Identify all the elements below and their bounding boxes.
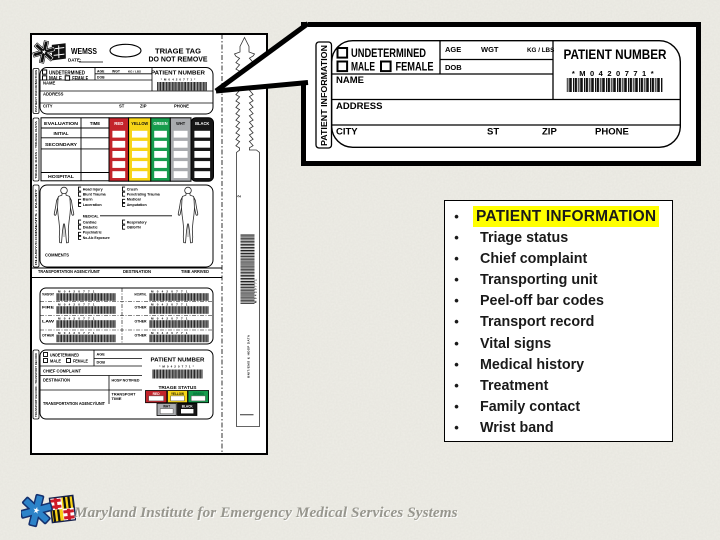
svg-text:BLACK: BLACK: [195, 121, 210, 126]
svg-text:M0420771: M0420771: [58, 302, 98, 306]
svg-text:CHIEF COMPLAINT: CHIEF COMPLAINT: [43, 369, 81, 374]
svg-text:HOSPITAL: HOSPITAL: [48, 174, 74, 179]
svg-text:*M0420771*: *M0420771*: [161, 78, 198, 82]
svg-text:TRANSPORTATION AGENCY/UNIT: TRANSPORTATION AGENCY/UNIT: [43, 401, 105, 406]
svg-text:UNDETERMINED: UNDETERMINED: [50, 352, 79, 357]
svg-text:M0420771: M0420771: [58, 316, 98, 320]
svg-text:ADDRESS: ADDRESS: [336, 101, 382, 112]
svg-text:CITY: CITY: [336, 127, 358, 138]
svg-text:PHONE: PHONE: [595, 127, 629, 138]
svg-text:OTHER: OTHER: [42, 334, 55, 338]
svg-text:INJURY/COMMENTS • INJURY: INJURY/COMMENTS • INJURY: [34, 189, 38, 265]
svg-text:YELLOW: YELLOW: [131, 121, 149, 126]
svg-text:INITIAL: INITIAL: [53, 131, 68, 136]
svg-text:DOB: DOB: [97, 76, 105, 80]
svg-text:TRANSPORT: TRANSPORT: [42, 292, 54, 296]
svg-text:PATIENT NUMBER: PATIENT NUMBER: [151, 358, 205, 364]
svg-text:TIME ARRIVED: TIME ARRIVED: [181, 269, 209, 274]
svg-text:PATIENT NUMBER: PATIENT NUMBER: [564, 47, 667, 62]
svg-text:KG / LBS: KG / LBS: [128, 70, 141, 74]
svg-text:AGE: AGE: [97, 353, 106, 357]
svg-text:AGE: AGE: [445, 45, 461, 54]
svg-text:TIME: TIME: [112, 396, 122, 401]
svg-text:MEDICAL: MEDICAL: [83, 213, 99, 218]
svg-text:HOSPITAL: HOSPITAL: [135, 292, 147, 296]
svg-text:WGT: WGT: [112, 70, 121, 74]
svg-text:FEMALE: FEMALE: [396, 62, 434, 74]
svg-text:WEMSS: WEMSS: [71, 47, 97, 56]
svg-text:OTHER: OTHER: [135, 319, 148, 323]
svg-text:SECONDARY: SECONDARY: [45, 142, 77, 147]
svg-text:LAW: LAW: [42, 319, 54, 323]
svg-text:MALE: MALE: [50, 358, 61, 363]
svg-text:No-Alc Exposure: No-Alc Exposure: [83, 235, 111, 240]
svg-text:UNIT/EMS & HOSP DATA: UNIT/EMS & HOSP DATA: [247, 334, 251, 378]
svg-text:WHT: WHT: [163, 405, 170, 409]
svg-text:M0420771: M0420771: [151, 289, 191, 293]
svg-text:WGT: WGT: [481, 45, 499, 54]
svg-text:Laceration: Laceration: [83, 202, 103, 207]
svg-text:ZIP: ZIP: [542, 127, 557, 138]
svg-text:DOB: DOB: [445, 63, 462, 72]
svg-text:OTHER: OTHER: [135, 305, 148, 309]
svg-text:NAME: NAME: [336, 75, 364, 86]
svg-text:AGE: AGE: [97, 70, 105, 74]
svg-text:ST: ST: [487, 127, 499, 138]
svg-text:TRIAGE DATA • TRIAGE DATA: TRIAGE DATA • TRIAGE DATA: [34, 120, 38, 179]
svg-text:TRANSPORT RECORD • TRANSPORT R: TRANSPORT RECORD • TRANSPORT RECORD: [34, 352, 38, 417]
svg-text:ST: ST: [119, 104, 125, 109]
svg-text:M0420771: M0420771: [151, 331, 191, 335]
svg-text:OB/GYN: OB/GYN: [127, 225, 141, 230]
svg-text:PHONE: PHONE: [174, 104, 189, 109]
svg-text:RED: RED: [153, 392, 161, 396]
svg-text:DO NOT REMOVE: DO NOT REMOVE: [149, 55, 208, 64]
svg-text:DESTINATION: DESTINATION: [123, 269, 151, 274]
svg-text:EVALUATION: EVALUATION: [44, 121, 78, 126]
svg-text:WHT: WHT: [176, 121, 185, 126]
svg-text:DOB: DOB: [97, 361, 106, 365]
svg-text:BLACK: BLACK: [182, 405, 194, 409]
svg-text:CITY: CITY: [43, 104, 53, 109]
svg-text:YELLOW: YELLOW: [171, 392, 184, 396]
svg-text:PATIENT INFORMATION: PATIENT INFORMATION: [319, 45, 329, 146]
svg-text:MALE: MALE: [351, 62, 375, 74]
svg-text:HOSP NOTIFIED: HOSP NOTIFIED: [112, 378, 140, 383]
svg-text:DESTINATION: DESTINATION: [43, 378, 70, 383]
svg-text:M0420771: M0420771: [254, 278, 258, 303]
svg-text:FIRE: FIRE: [42, 305, 54, 309]
svg-text:PATIENT INFORMATION: PATIENT INFORMATION: [34, 70, 38, 112]
svg-text:*M0420771*: *M0420771*: [572, 69, 658, 78]
svg-text:M0420771: M0420771: [58, 331, 98, 335]
svg-text:Amputation: Amputation: [127, 202, 148, 207]
svg-text:ADDRESS: ADDRESS: [43, 92, 64, 97]
svg-text:TIME: TIME: [90, 121, 100, 126]
svg-text:OTHER: OTHER: [135, 334, 148, 338]
svg-text:RED: RED: [114, 121, 123, 126]
svg-text:TRANSPORTATION AGENCY/UNIT: TRANSPORTATION AGENCY/UNIT: [38, 269, 100, 274]
svg-text:UNDETERMINED: UNDETERMINED: [351, 48, 426, 60]
svg-text:GREEN: GREEN: [153, 121, 167, 126]
svg-text:ZIP: ZIP: [140, 104, 147, 109]
svg-text:M0420771: M0420771: [151, 316, 191, 320]
svg-text:FEMALE: FEMALE: [73, 358, 88, 363]
svg-text:COMMENTS: COMMENTS: [45, 253, 69, 258]
svg-text:TRIAGE STATUS: TRIAGE STATUS: [159, 385, 197, 390]
svg-text:FEMALE: FEMALE: [72, 76, 89, 82]
svg-text:GREEN: GREEN: [193, 392, 205, 396]
svg-text:M0420771: M0420771: [151, 302, 191, 306]
svg-text:NAME: NAME: [43, 81, 56, 86]
svg-text:PATIENT NUMBER: PATIENT NUMBER: [151, 71, 205, 77]
svg-text:*M0420771*: *M0420771*: [159, 365, 196, 369]
svg-text:KG / LBS: KG / LBS: [527, 47, 554, 54]
svg-text:M0420771: M0420771: [58, 289, 98, 293]
